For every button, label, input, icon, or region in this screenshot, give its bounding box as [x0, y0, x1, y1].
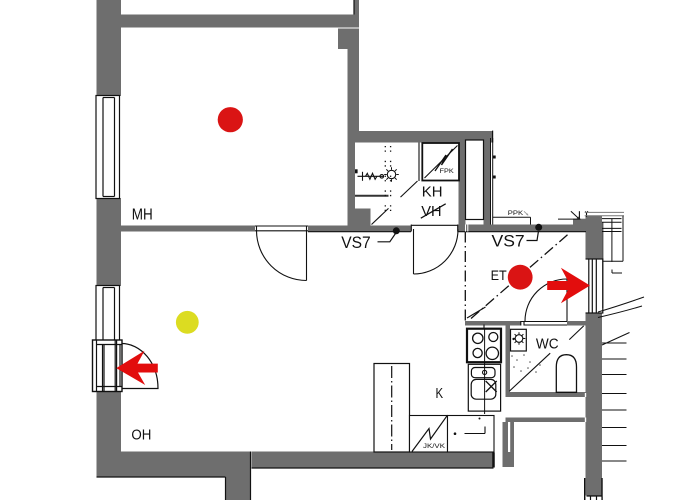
svg-text:FPK: FPK: [440, 168, 455, 175]
svg-text:PPK: PPK: [508, 210, 524, 217]
svg-text:K: K: [436, 386, 444, 402]
svg-text:KH: KH: [422, 184, 443, 200]
svg-text:VS7: VS7: [492, 231, 525, 250]
svg-text:ET: ET: [491, 267, 508, 283]
svg-text:JK/VK: JK/VK: [423, 443, 446, 450]
svg-text:WC: WC: [536, 336, 559, 353]
svg-text:OH: OH: [131, 428, 151, 444]
svg-text:MH: MH: [132, 207, 153, 224]
svg-text:VS7: VS7: [341, 233, 371, 252]
